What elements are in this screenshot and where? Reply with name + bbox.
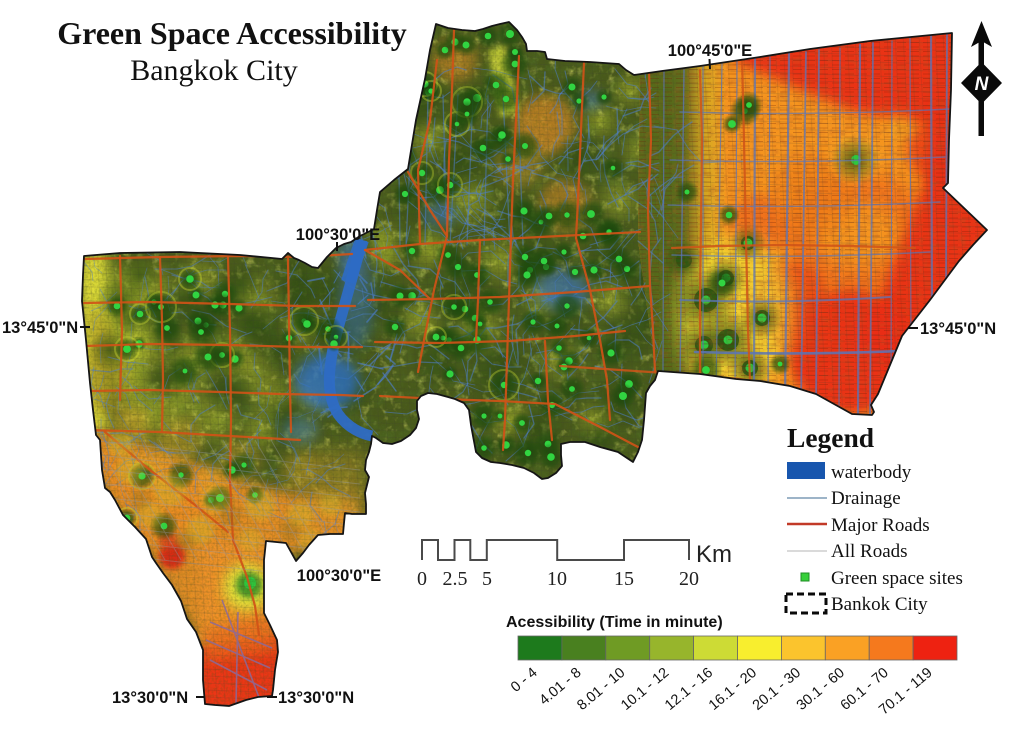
svg-text:0: 0 <box>417 568 427 590</box>
svg-text:100°45'0"E: 100°45'0"E <box>668 42 752 60</box>
svg-text:Green Space Accessibility: Green Space Accessibility <box>57 15 407 51</box>
svg-text:10: 10 <box>547 568 567 590</box>
svg-text:Green space sites: Green space sites <box>831 568 963 589</box>
svg-text:100°30'0"E: 100°30'0"E <box>296 226 380 244</box>
svg-text:15: 15 <box>614 568 634 590</box>
svg-text:Bankok City: Bankok City <box>831 594 928 615</box>
svg-text:13°45'0"N: 13°45'0"N <box>920 320 996 338</box>
svg-text:16.1 - 20: 16.1 - 20 <box>706 665 760 714</box>
svg-text:All Roads: All Roads <box>831 541 908 562</box>
svg-text:30.1 - 60: 30.1 - 60 <box>794 665 848 714</box>
svg-text:Acessibility (Time in minute): Acessibility (Time in minute) <box>506 614 723 631</box>
svg-text:20.1 - 30: 20.1 - 30 <box>750 665 804 714</box>
svg-text:N: N <box>975 74 990 95</box>
svg-text:13°30'0"N: 13°30'0"N <box>278 689 354 707</box>
svg-text:8.01 - 10: 8.01 - 10 <box>574 665 628 714</box>
svg-text:Major Roads: Major Roads <box>831 515 930 536</box>
svg-text:13°45'0"N: 13°45'0"N <box>2 319 78 337</box>
svg-text:5: 5 <box>482 568 492 590</box>
svg-text:13°30'0"N: 13°30'0"N <box>112 689 188 707</box>
svg-text:2.5: 2.5 <box>443 568 468 590</box>
svg-text:100°30'0"E: 100°30'0"E <box>297 567 381 585</box>
svg-text:10.1 - 12: 10.1 - 12 <box>618 665 672 714</box>
svg-text:12.1 - 16: 12.1 - 16 <box>662 665 716 714</box>
svg-text:Bangkok City: Bangkok City <box>130 54 298 87</box>
svg-text:0 - 4: 0 - 4 <box>508 665 541 696</box>
svg-text:Drainage: Drainage <box>831 488 901 509</box>
svg-text:20: 20 <box>679 568 699 590</box>
svg-text:Km: Km <box>696 541 732 568</box>
svg-text:Legend: Legend <box>787 422 874 453</box>
svg-text:waterbody: waterbody <box>831 462 912 483</box>
